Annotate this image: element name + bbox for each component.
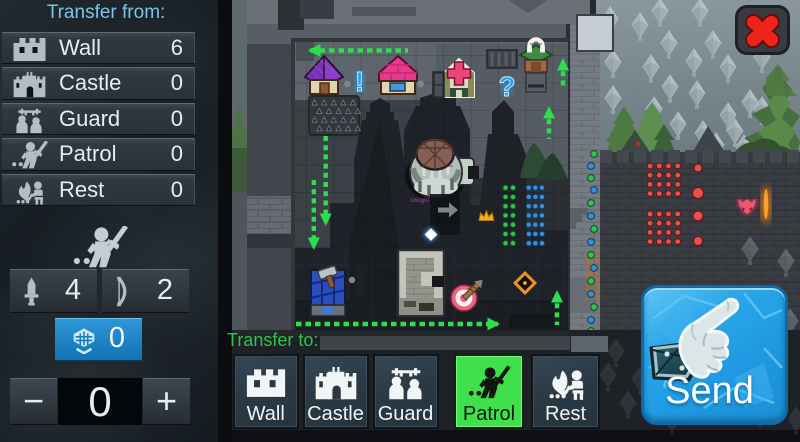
svg-text:!: ! <box>355 66 364 97</box>
svg-text:?: ? <box>498 71 515 102</box>
svg-text:Dwight: Dwight <box>411 198 430 204</box>
